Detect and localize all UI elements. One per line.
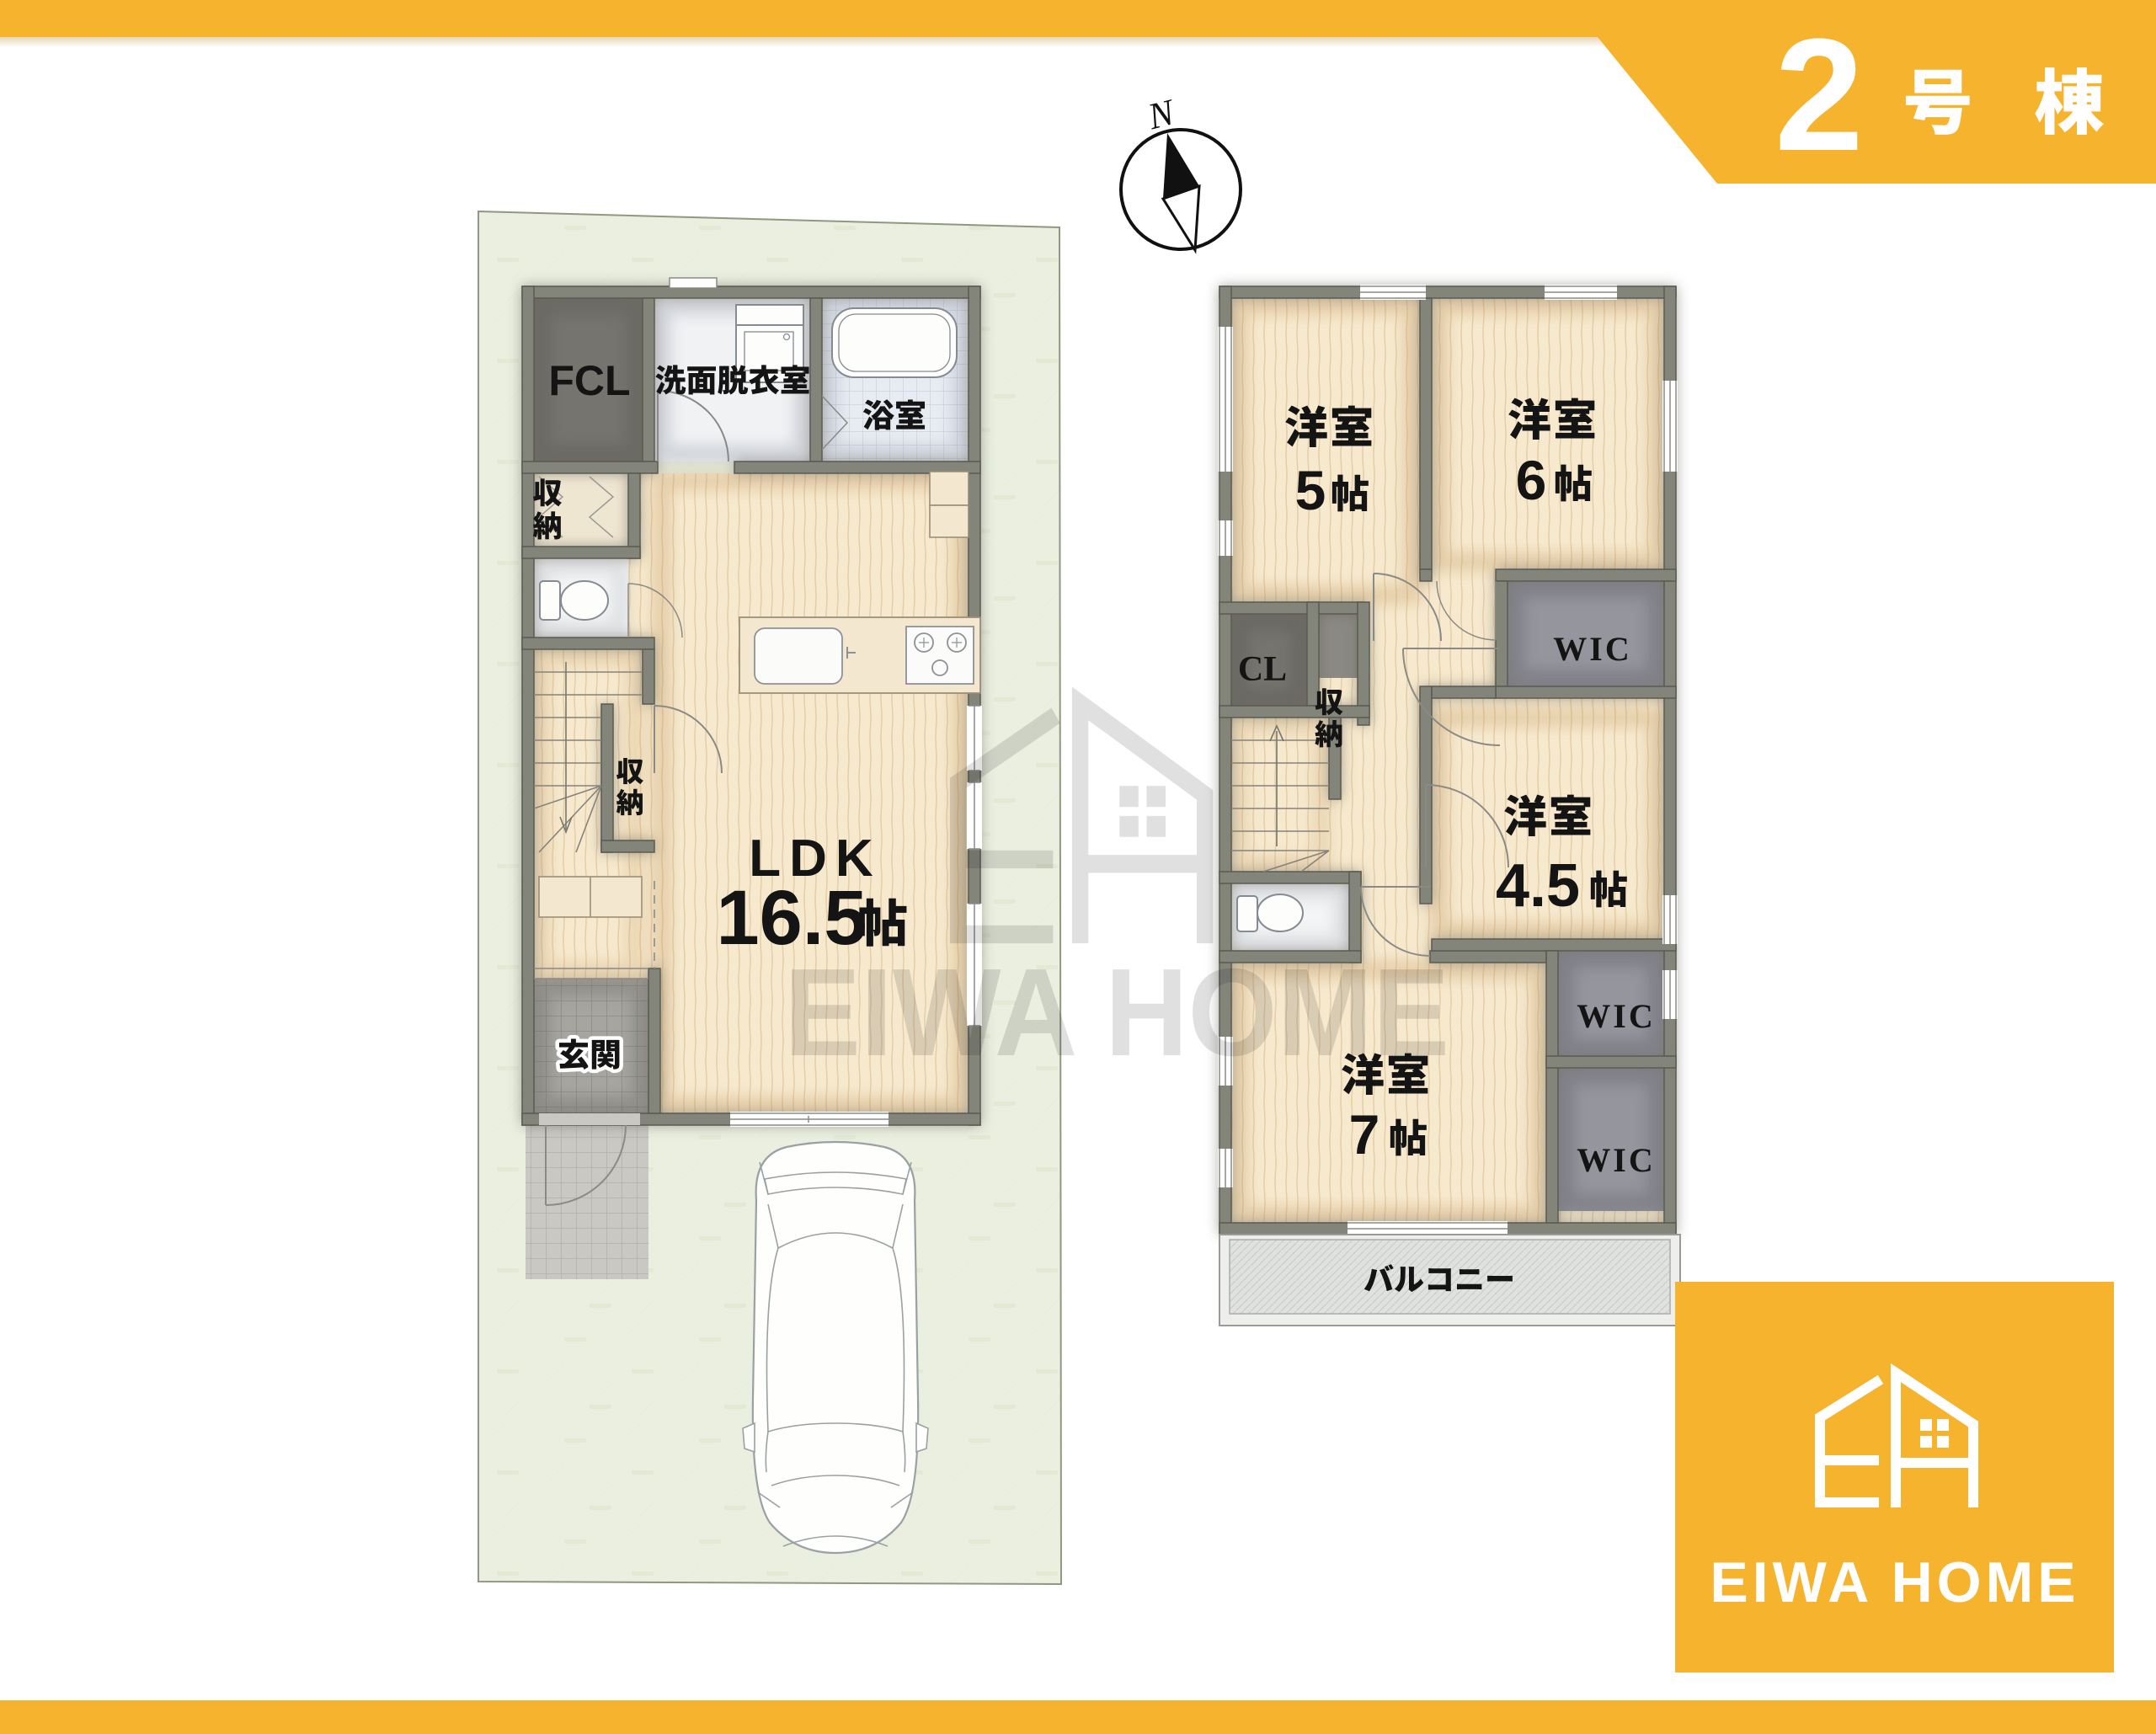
svg-text:4.5: 4.5 <box>1496 852 1580 920</box>
svg-text:WIC: WIC <box>1577 1141 1655 1179</box>
svg-text:EIWA HOME: EIWA HOME <box>1710 1550 2079 1614</box>
svg-text:2: 2 <box>1774 6 1864 184</box>
svg-text:EIWA HOME: EIWA HOME <box>784 943 1449 1082</box>
svg-text:CL: CL <box>1238 650 1287 689</box>
svg-text:5: 5 <box>1295 459 1326 521</box>
svg-text:7: 7 <box>1349 1103 1380 1166</box>
svg-text:FCL: FCL <box>548 357 630 404</box>
svg-text:WIC: WIC <box>1553 630 1631 668</box>
svg-text:6: 6 <box>1516 449 1547 511</box>
svg-text:WIC: WIC <box>1577 997 1655 1035</box>
